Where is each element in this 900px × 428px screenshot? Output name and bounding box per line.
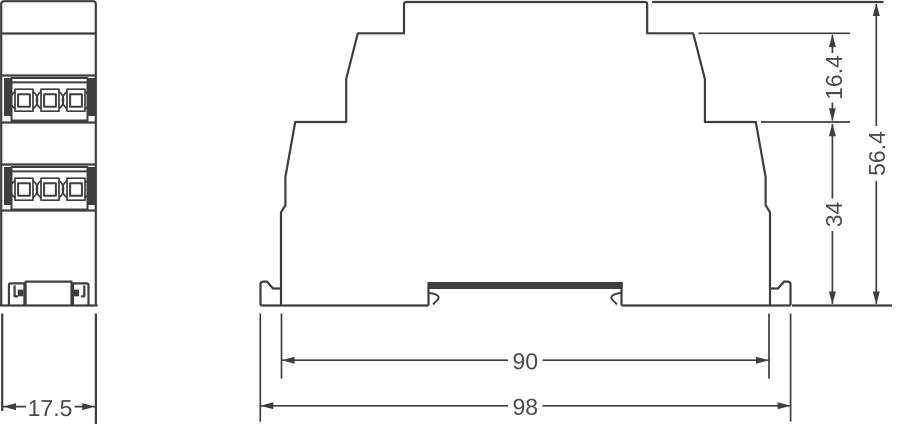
- svg-text:34: 34: [821, 202, 847, 228]
- svg-text:17.5: 17.5: [28, 395, 73, 421]
- svg-text:56.4: 56.4: [864, 131, 890, 176]
- svg-text:98: 98: [513, 394, 539, 420]
- svg-text:16.4: 16.4: [821, 55, 847, 100]
- svg-text:90: 90: [513, 348, 539, 374]
